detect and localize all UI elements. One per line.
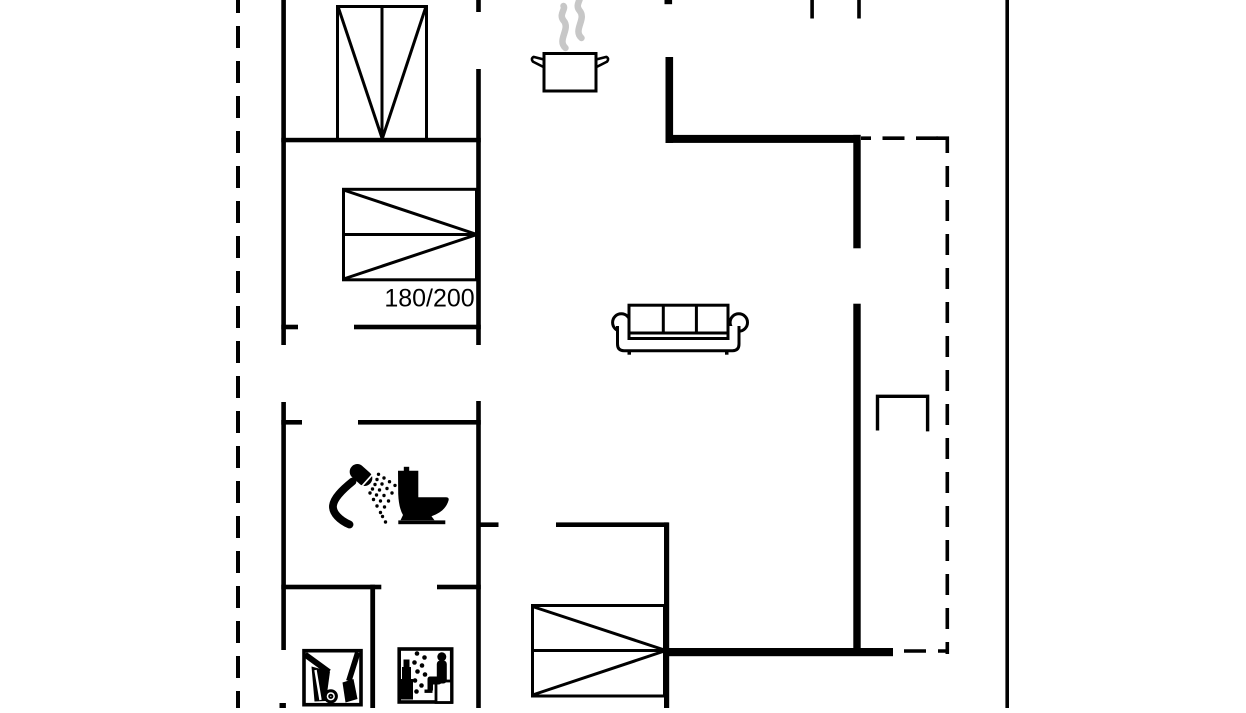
- svg-text:180/200: 180/200: [384, 285, 474, 313]
